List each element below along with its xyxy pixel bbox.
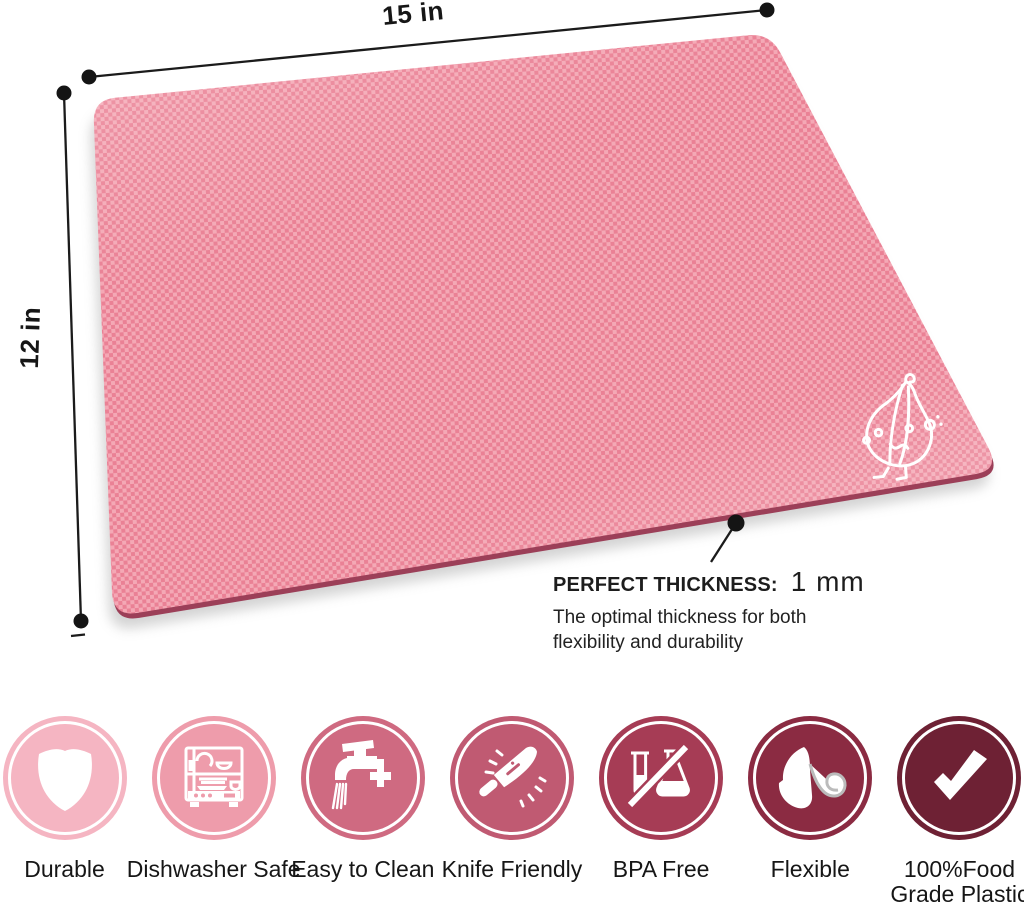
thickness-callout: PERFECT THICKNESS: 1 mm The optimal thic… xyxy=(553,566,865,655)
width-dimension-label: 15 in xyxy=(381,0,445,31)
badge-dishwasher-circle xyxy=(152,716,276,840)
product-infographic: 15 in 12 in PERFECT THICKNESS: 1 mm The … xyxy=(0,0,1024,913)
feature-badges-row: Durable xyxy=(0,716,1024,907)
knife-icon xyxy=(472,738,552,818)
thickness-description-line1: The optimal thickness for both xyxy=(553,606,865,631)
badge-flexible-circle xyxy=(748,716,872,840)
height-dimension-line xyxy=(57,86,89,637)
badge-food-grade-circle xyxy=(897,716,1021,840)
shield-icon xyxy=(25,738,105,818)
badge-flexible-label: Flexible xyxy=(771,857,850,882)
checkmark-icon xyxy=(919,738,999,818)
thickness-description: The optimal thickness for both flexibili… xyxy=(553,606,865,655)
badge-durable: Durable xyxy=(1,716,128,907)
thickness-value: 1 mm xyxy=(791,566,865,598)
badge-flexible: Flexible xyxy=(747,716,874,907)
badge-knife-circle xyxy=(450,716,574,840)
badge-durable-label: Durable xyxy=(24,857,105,882)
badge-bpa-label: BPA Free xyxy=(613,857,710,882)
bpa-free-icon xyxy=(621,738,701,818)
flexible-icon xyxy=(770,738,850,818)
badge-clean-label: Easy to Clean xyxy=(291,857,434,882)
badge-clean-circle xyxy=(301,716,425,840)
badge-bpa-circle xyxy=(599,716,723,840)
thickness-description-line2: flexibility and durability xyxy=(553,631,865,656)
badge-durable-circle xyxy=(3,716,127,840)
thickness-heading: PERFECT THICKNESS: xyxy=(553,574,778,597)
badge-dishwasher-label: Dishwasher Safe xyxy=(127,857,301,882)
badge-bpa-free: BPA Free xyxy=(598,716,725,907)
dishwasher-icon xyxy=(174,738,254,818)
faucet-icon xyxy=(323,738,403,818)
badge-knife-friendly: Knife Friendly xyxy=(448,716,575,907)
mat-sheen xyxy=(94,35,992,614)
thickness-title: PERFECT THICKNESS: 1 mm xyxy=(553,566,865,598)
badge-knife-label: Knife Friendly xyxy=(442,857,583,882)
badge-easy-to-clean: Easy to Clean xyxy=(299,716,426,907)
badge-dishwasher-safe: Dishwasher Safe xyxy=(150,716,277,907)
badge-food-grade: 100%FoodGrade Plastic xyxy=(896,716,1023,907)
cutting-mat-illustration: 15 in 12 in xyxy=(0,0,1024,700)
height-dimension-label: 12 in xyxy=(14,306,46,369)
badge-food-grade-label: 100%FoodGrade Plastic xyxy=(890,857,1024,907)
